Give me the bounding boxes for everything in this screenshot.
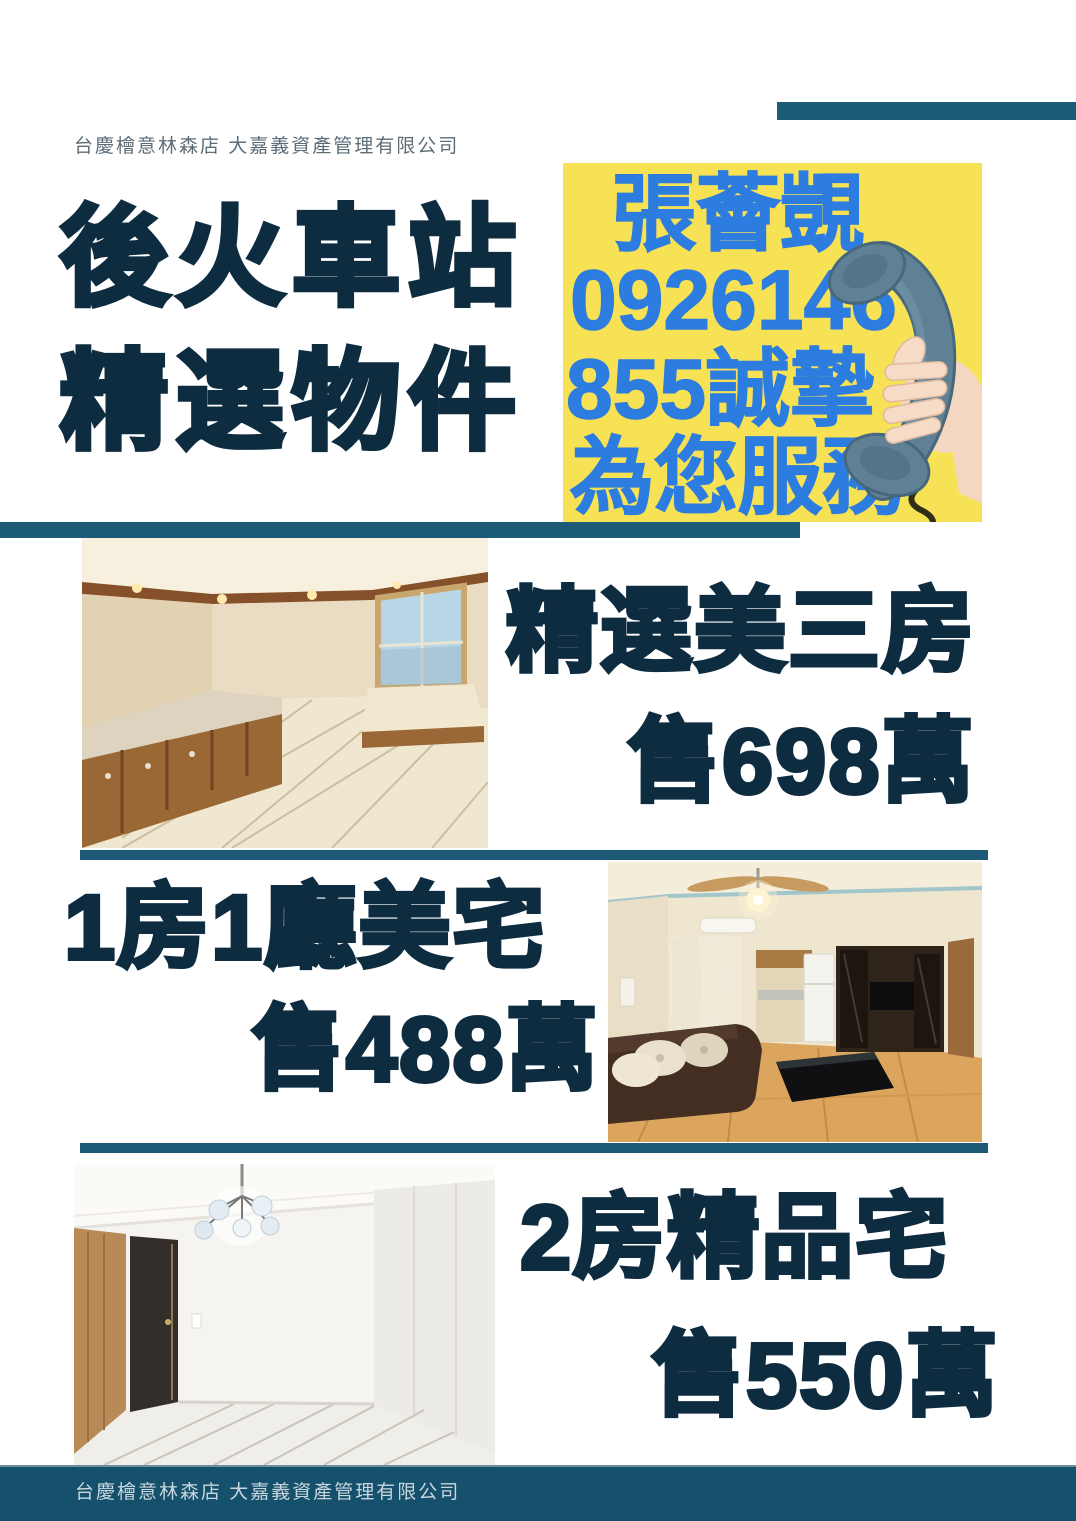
listing-3-title: 2房精品宅 — [520, 1192, 949, 1284]
listing-1-title: 精選美三房 — [506, 586, 976, 678]
divider-bar-3 — [80, 1143, 988, 1153]
property-photo-1 — [82, 538, 488, 848]
listing-1-price: 售698萬 — [628, 716, 976, 808]
footer-company-text: 台慶檜意林森店 大嘉義資產管理有限公司 — [75, 1483, 460, 1502]
main-title-line1: 後火車站 — [60, 204, 524, 312]
top-right-divider-bar — [777, 102, 1076, 120]
listing-2-price: 售488萬 — [252, 1004, 600, 1096]
divider-bar-2 — [80, 850, 988, 860]
listing-3-price: 售550萬 — [652, 1330, 1000, 1422]
divider-bar-1 — [0, 522, 800, 538]
header-company-text: 台慶檜意林森店 大嘉義資產管理有限公司 — [74, 137, 459, 156]
phone-handset-icon — [825, 237, 982, 522]
property-photo-2 — [608, 862, 982, 1142]
contact-card: 張薈覬 0926146 855誠摯 為您服務 — [563, 163, 982, 522]
main-title-line2: 精選物件 — [60, 348, 524, 456]
listing-2-title: 1房1廳美宅 — [64, 882, 546, 974]
real-estate-flyer: 台慶檜意林森店 大嘉義資產管理有限公司 後火車站 精選物件 張薈覬 092614… — [0, 0, 1076, 1521]
footer-band: 台慶檜意林森店 大嘉義資產管理有限公司 — [0, 1465, 1076, 1521]
property-photo-3 — [74, 1164, 495, 1465]
